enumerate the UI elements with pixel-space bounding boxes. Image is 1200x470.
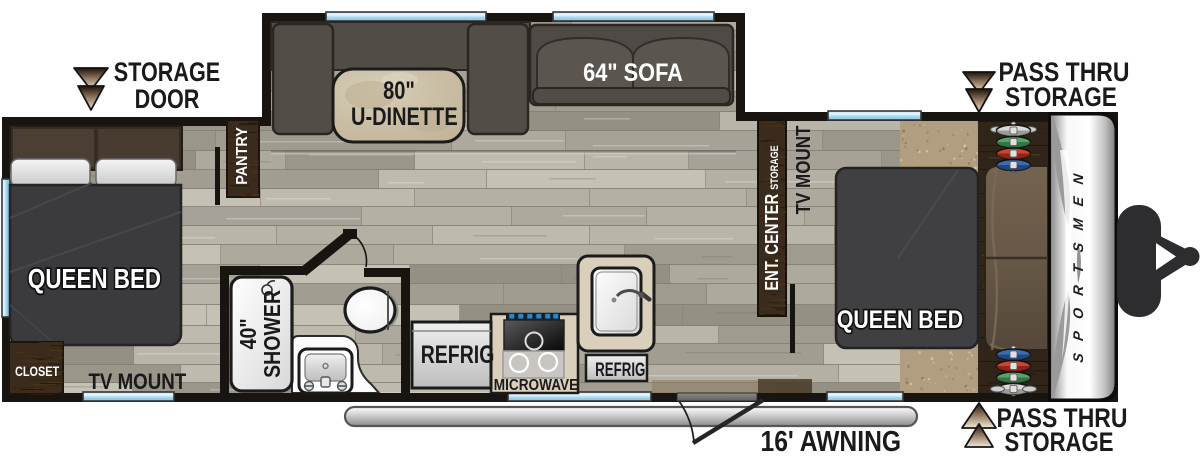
svg-text:QUEEN BED: QUEEN BED [28, 264, 161, 295]
svg-text:QUEEN BED: QUEEN BED [837, 305, 963, 333]
